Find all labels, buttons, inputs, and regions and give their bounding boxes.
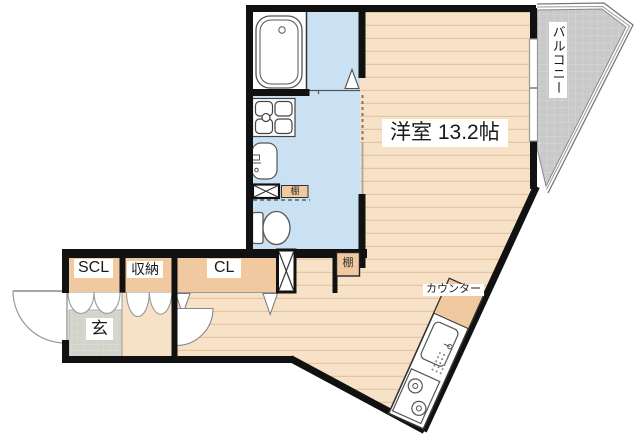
- floorplan-drawing: [0, 0, 640, 440]
- shoe-closet-label: SCL: [74, 259, 113, 278]
- closet-label: CL: [207, 259, 241, 278]
- pipe-space-box: [278, 250, 296, 292]
- window-main: [530, 39, 538, 141]
- entrance-label: 玄: [86, 318, 113, 340]
- door-swing-entrance: [13, 291, 65, 343]
- balcony-label: バルコニー: [549, 22, 567, 98]
- toilet: [253, 212, 291, 245]
- washbasin: [252, 143, 277, 179]
- washing-machine-pan: [253, 99, 296, 137]
- shelf-lower-label: 棚: [337, 258, 359, 270]
- washer-space-box: [253, 185, 279, 199]
- main-room-label: 洋室 13.2帖: [382, 119, 508, 147]
- storage-label: 収納: [127, 261, 163, 278]
- counter-label: カウンター: [423, 284, 484, 296]
- shelf-upper-label: 棚: [282, 187, 308, 196]
- bathtub: [256, 16, 302, 88]
- floorplan: 洋室 13.2帖 バルコニー SCL 収納 CL 玄 棚 棚 カウンター: [0, 0, 640, 440]
